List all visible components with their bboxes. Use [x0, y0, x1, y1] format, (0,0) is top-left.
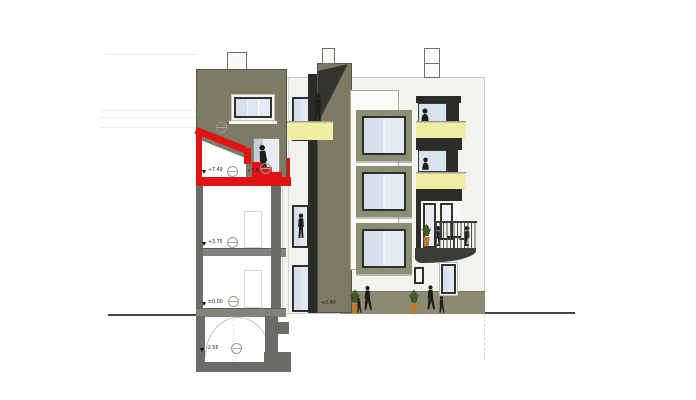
balcony-spandrel [416, 189, 462, 201]
basement-wall-left [196, 316, 205, 362]
reference-stamp-icon [227, 166, 238, 177]
neighbour-line [105, 54, 197, 55]
child-walking-right-icon [437, 295, 446, 315]
tower-balcony-parapet [283, 122, 333, 140]
balcony-parapet-middle [416, 173, 466, 190]
adult-walking-right-icon [424, 281, 437, 315]
red-floor-slab [196, 177, 291, 186]
window-glass [294, 267, 308, 310]
potted-plant-on-balcony-icon [420, 221, 433, 249]
level-marker-icon [202, 170, 206, 174]
cut-wall-left [196, 186, 203, 308]
red-roof-end-post [244, 148, 251, 164]
neighbour-line [100, 110, 197, 111]
door-outline [244, 270, 262, 308]
chimney-divider [425, 63, 439, 64]
facade-edge-line [288, 77, 289, 313]
ground-window [439, 262, 458, 296]
level-marker-icon [202, 242, 206, 246]
level-text: +3.75 [208, 240, 223, 245]
adult-walking-left-icon [361, 282, 374, 315]
window-glass [443, 266, 454, 292]
olive-block-window [231, 94, 275, 121]
panel-window-middle [356, 166, 412, 217]
panel-window-bottom [356, 223, 412, 274]
basement-wall-right [265, 316, 278, 352]
neighbour-line [100, 117, 197, 118]
window-sill [229, 121, 277, 124]
window-frame [441, 264, 456, 294]
balcony-recess-jamb [447, 150, 458, 172]
window-glass [364, 231, 404, 266]
level-label-attic-left: +7.49 [208, 169, 223, 174]
grade-line-right [485, 312, 575, 314]
basement-floor-slab [196, 362, 271, 372]
balcony-handrail [436, 221, 477, 223]
neighbour-line [100, 127, 197, 128]
level-text: +0.40 [321, 301, 336, 306]
window-glass [364, 118, 404, 153]
person-standing-in-bay-window-icon [295, 212, 307, 240]
level-text: -2.56 [206, 346, 218, 351]
window-glass [364, 174, 404, 209]
balcony-spandrel [416, 138, 462, 150]
boundary-dashed-line [484, 314, 485, 360]
balcony-parapet-upper [416, 122, 466, 139]
level-marker-icon [202, 302, 206, 306]
level-label-basement: -2.56 [206, 347, 218, 352]
reference-stamp-icon [216, 122, 227, 133]
level-text: +7.49 [208, 168, 223, 173]
chimney-right-facade [424, 48, 440, 78]
potted-plant-ground-right-icon [407, 287, 421, 316]
reference-stamp-icon [228, 296, 239, 307]
footing-step [278, 322, 289, 334]
reference-stamp-icon [260, 163, 271, 174]
person-at-middle-balcony-window-icon [421, 157, 430, 170]
reference-stamp-icon [231, 343, 242, 354]
balcony-recess-jamb [447, 96, 459, 122]
reference-stamp-icon [227, 237, 238, 248]
level-label-ground: ±0.00 [208, 301, 223, 306]
door-outline [244, 211, 262, 248]
window-frame [234, 97, 272, 118]
cut-wall-right [271, 186, 281, 308]
level-label-tower-base: +0.40 [321, 302, 336, 307]
chimney-left-block [227, 52, 247, 70]
panel-window-top [356, 110, 412, 161]
balcony-railing [436, 223, 477, 249]
window-glass [236, 99, 270, 116]
level-label-floor1: +3.75 [208, 241, 223, 246]
level-marker-icon [200, 348, 204, 352]
architectural-drawing: +0.40 [0, 0, 696, 400]
grade-line-left [108, 314, 197, 316]
chimney-tower [322, 48, 335, 64]
person-standing-on-tower-balcony-icon [311, 93, 325, 122]
person-at-upper-balcony-window-icon [420, 108, 430, 122]
ground-window-small [414, 267, 424, 284]
level-text: ±0.00 [208, 300, 223, 305]
